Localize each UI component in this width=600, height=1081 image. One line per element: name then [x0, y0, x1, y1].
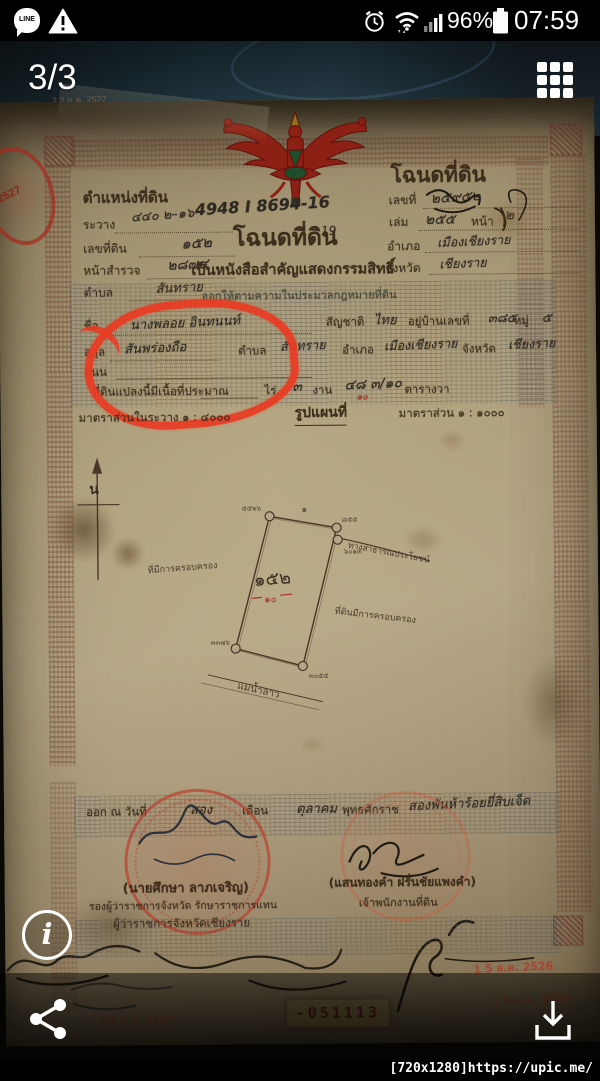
- info-icon: i: [41, 917, 52, 951]
- stain: [104, 529, 152, 577]
- grid-icon: [537, 62, 547, 72]
- battery-icon: [492, 8, 509, 34]
- phone-screen: LINE 96% 07: [0, 0, 600, 1081]
- alarm-icon: [363, 10, 386, 33]
- stain: [511, 637, 598, 768]
- signal-icon: [424, 12, 444, 33]
- download-button[interactable]: [530, 997, 576, 1043]
- status-bar: LINE 96% 07: [0, 0, 600, 41]
- page-indicator: 3/3: [28, 58, 77, 98]
- watermark-text: [720x1280]https://upic.me/: [390, 1061, 594, 1076]
- warning-icon: [48, 8, 78, 34]
- bottom-toolbar-overlay: [0, 973, 600, 1060]
- signer-right-name: (แสนทองคำ ฝรั่นชัยแพงคำ): [329, 872, 476, 892]
- edge-stamp-year: 2527: [0, 184, 23, 206]
- share-button[interactable]: [26, 995, 72, 1043]
- wifi-icon: [394, 11, 421, 34]
- land-deed-document: โฉนดที่ดิน เลขที่ ๒๕๙๕๒ เล่ม ๒๕๕ หน้า ๒ …: [0, 97, 600, 1046]
- share-icon: [30, 999, 66, 1039]
- download-icon: [537, 1001, 569, 1038]
- battery-percent: 96%: [447, 7, 493, 34]
- line-icon-label: LINE: [14, 16, 40, 23]
- gallery-grid-button[interactable]: [537, 62, 574, 99]
- clock-time: 07:59: [514, 5, 579, 36]
- photo-view[interactable]: 2 2 ม.ค. 2527: [0, 41, 600, 1060]
- watermark-strip: [720x1280]https://upic.me/: [0, 1060, 600, 1081]
- line-notification-icon: LINE: [14, 8, 40, 33]
- header-gradient-overlay: [0, 41, 600, 127]
- signer-right-title: เจ้าพนักงานที่ดิน: [359, 893, 438, 912]
- stain: [469, 188, 544, 253]
- info-button[interactable]: i: [22, 910, 72, 960]
